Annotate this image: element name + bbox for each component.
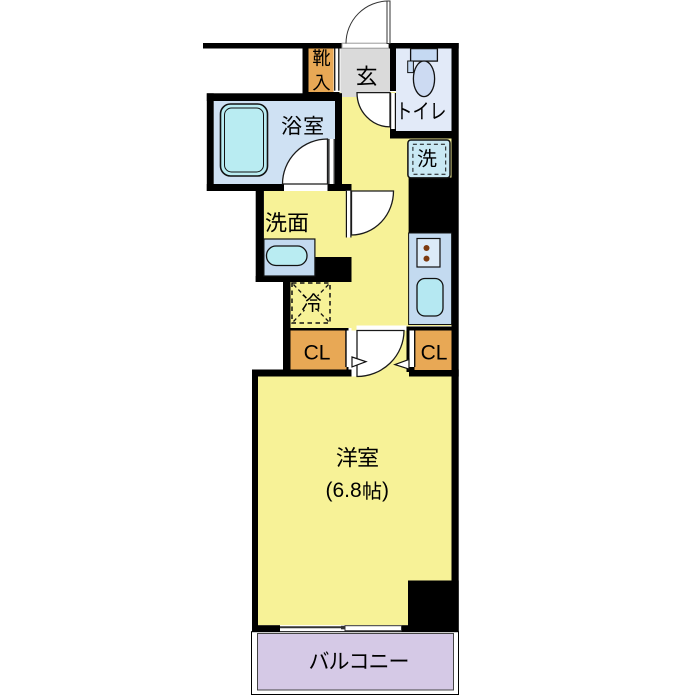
- svg-text:CL: CL: [304, 342, 331, 365]
- svg-text:(6.8: (6.8: [326, 479, 362, 502]
- svg-text:CL: CL: [421, 342, 448, 365]
- svg-text:): ): [382, 479, 389, 502]
